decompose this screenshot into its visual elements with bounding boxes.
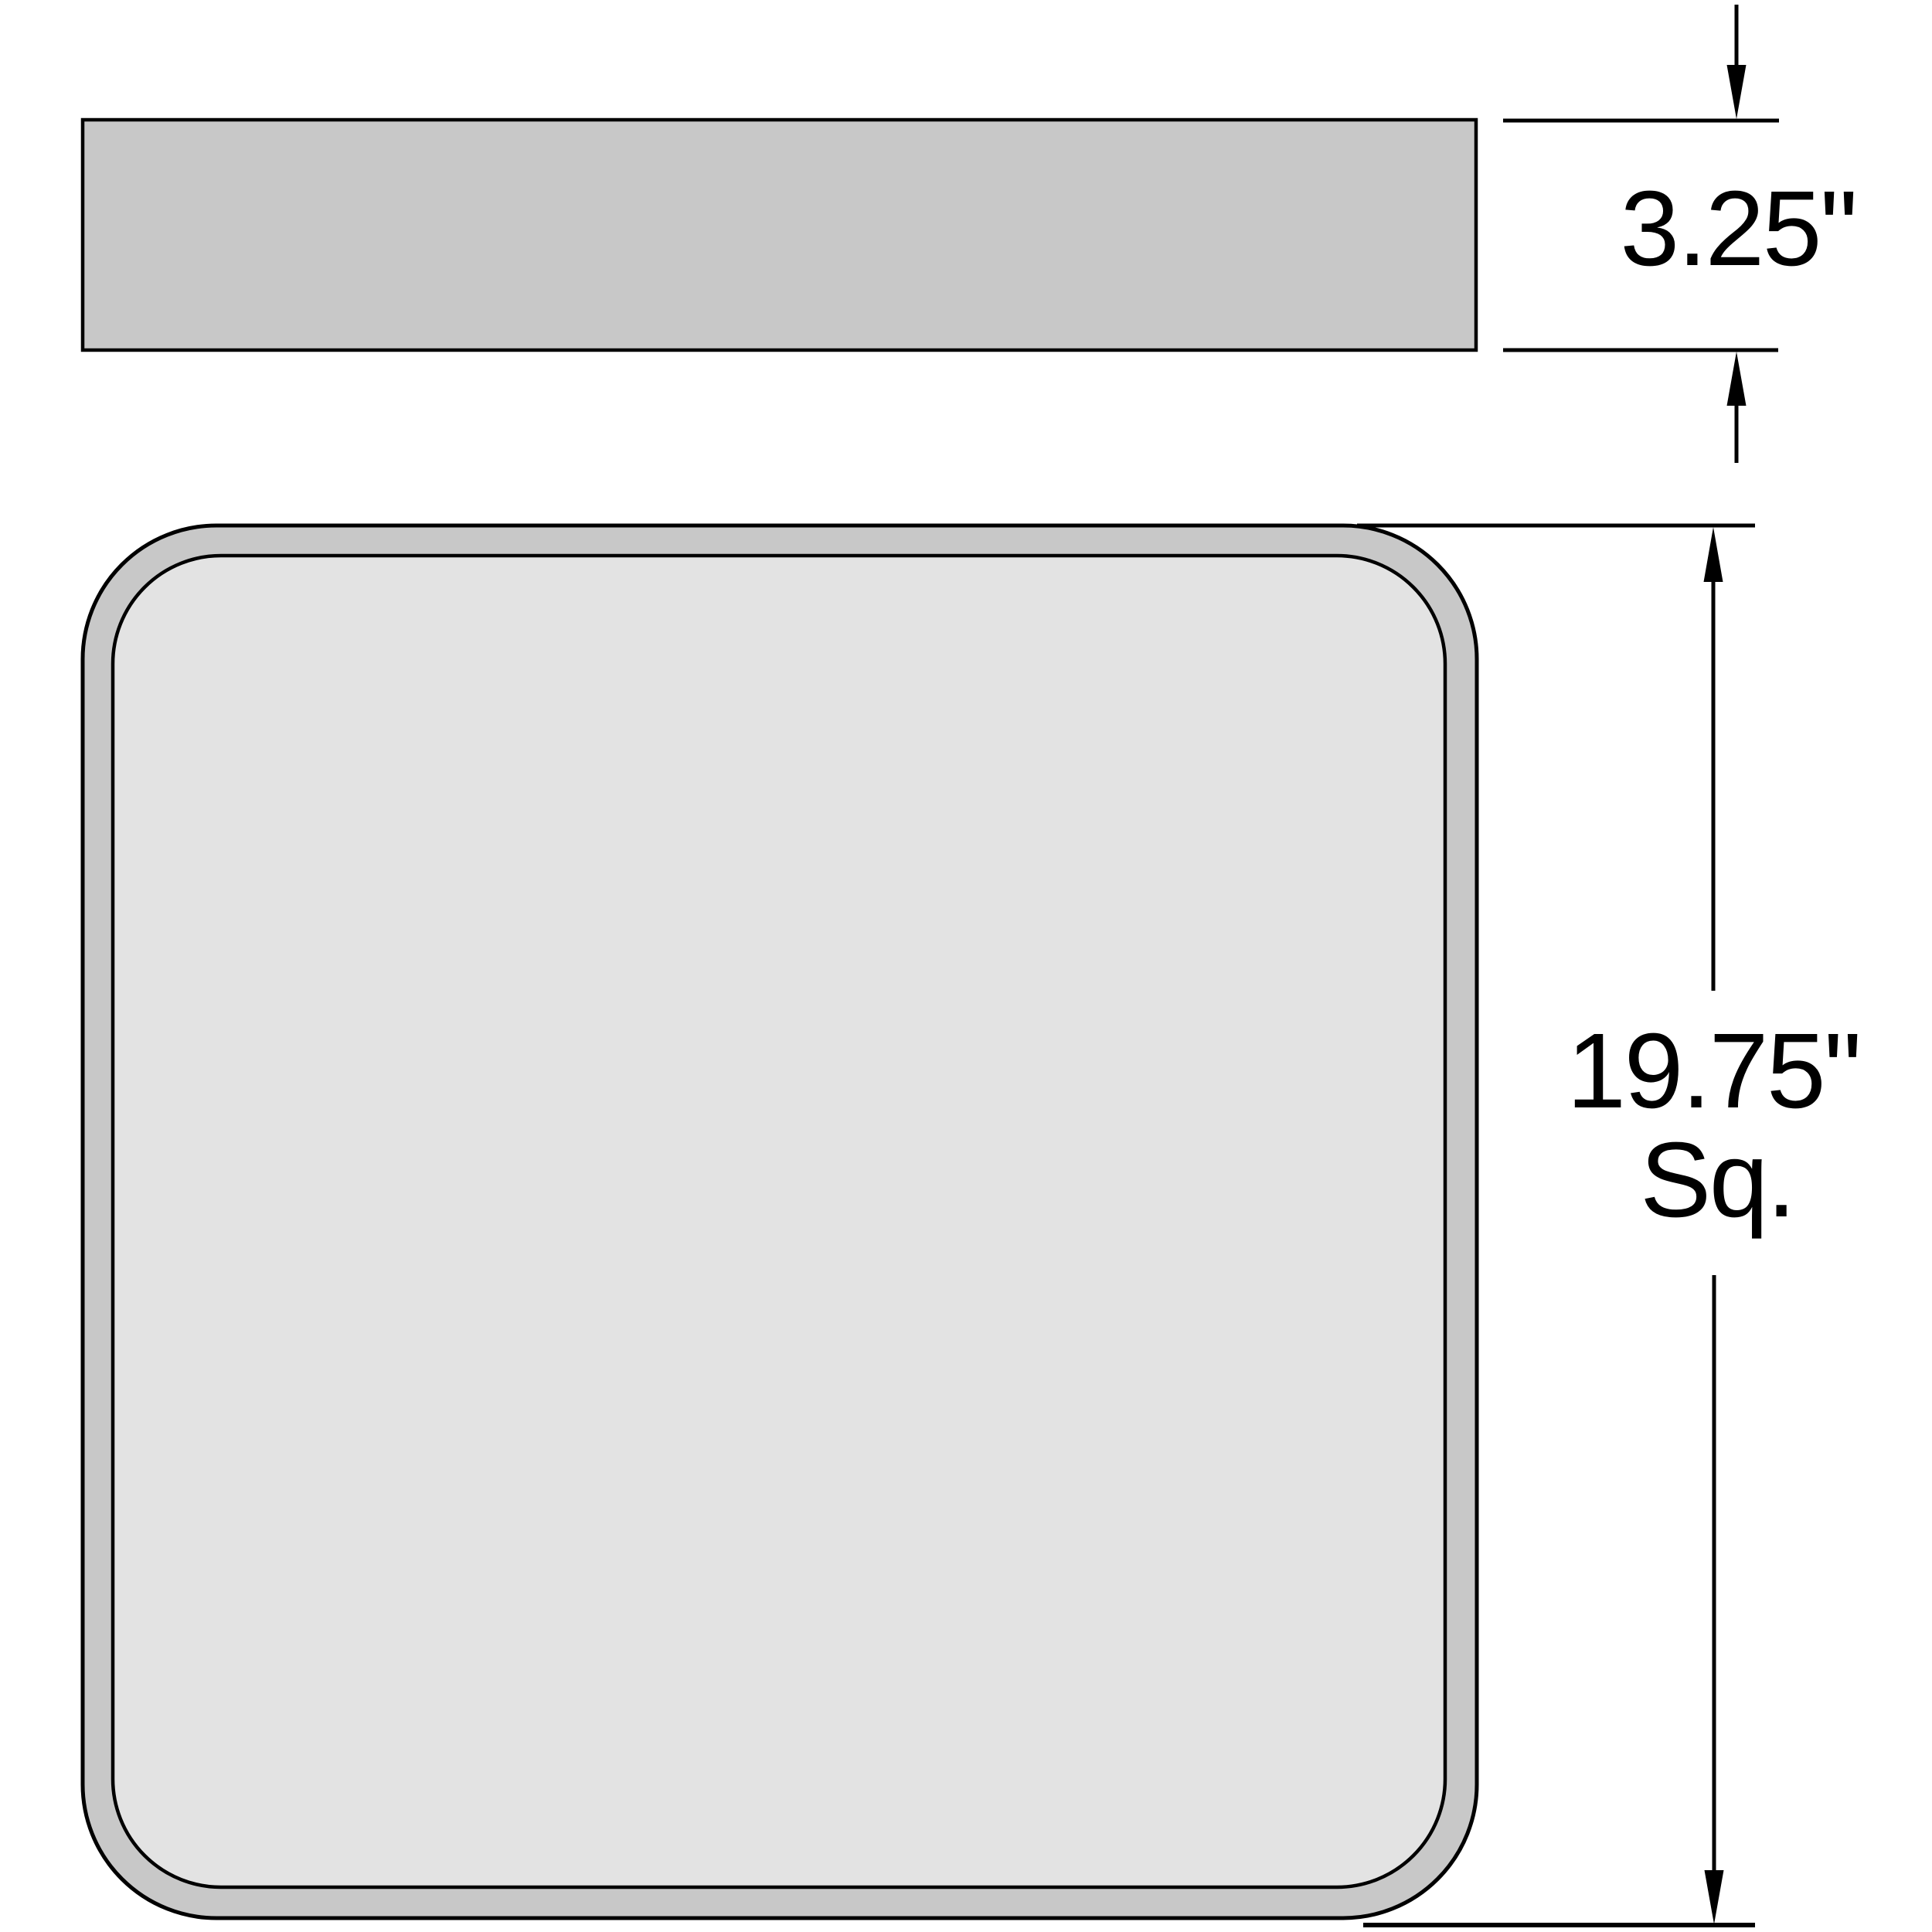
svg-text:3.25": 3.25": [1620, 169, 1855, 288]
svg-text:Sq.: Sq.: [1640, 1121, 1794, 1240]
svg-text:19.75": 19.75": [1566, 1012, 1859, 1131]
